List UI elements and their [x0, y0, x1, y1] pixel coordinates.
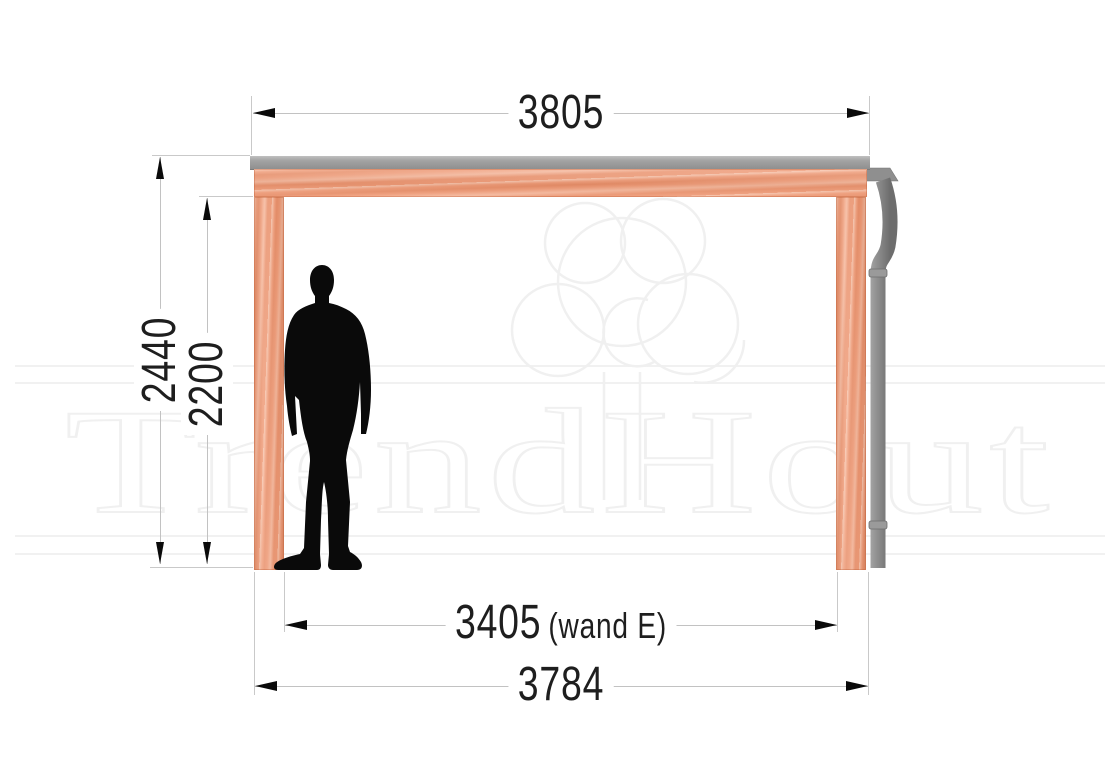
watermark: TrendHout — [0, 0, 1120, 770]
pipe-bracket — [869, 269, 887, 277]
human-silhouette — [270, 262, 374, 572]
gutter-end-cap — [866, 168, 898, 181]
roof-beam — [254, 169, 867, 197]
elevation-drawing: TrendHout 3805 — [0, 0, 1120, 770]
roof-panel — [250, 156, 870, 170]
downpipe — [878, 180, 890, 568]
pipe-bracket — [869, 521, 887, 529]
post-right — [836, 197, 866, 570]
silhouette-path — [274, 265, 371, 570]
